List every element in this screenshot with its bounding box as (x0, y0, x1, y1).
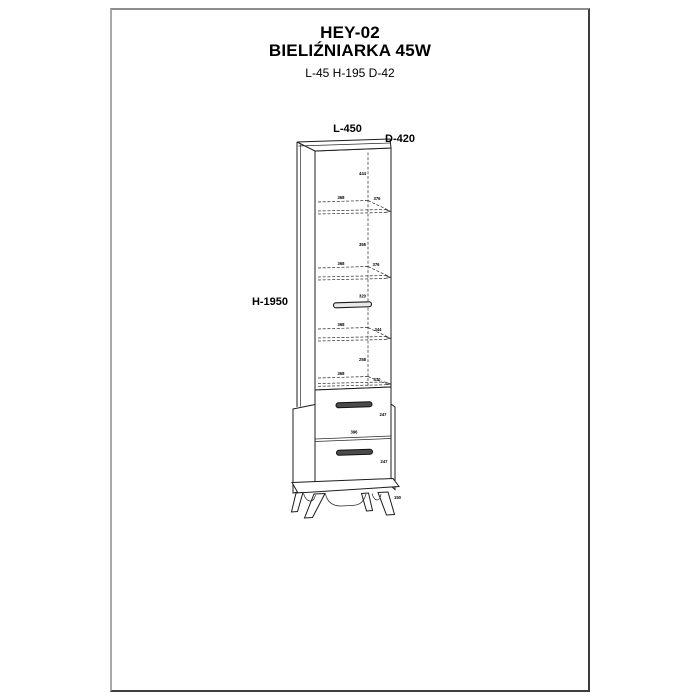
door-handle (333, 302, 371, 308)
dim-gap2: 320 (359, 294, 367, 299)
base-side-panel-right (391, 404, 395, 490)
dim-shelf4-depth: 470 (374, 377, 382, 382)
dim-shelf1-width: 368 (338, 195, 346, 200)
base-and-legs: 150 (292, 479, 402, 519)
leg-back-right (362, 493, 373, 511)
height-dimension-label: H-1950 (252, 296, 288, 308)
dim-shelf4-width: 368 (338, 371, 346, 376)
dim-shelf2-depth: 376 (373, 262, 381, 267)
dim-gap1: 355 (359, 242, 367, 247)
dim-shelf3-depth: 344 (375, 327, 383, 332)
wardrobe-door (315, 148, 391, 390)
dim-shelf2-width: 368 (338, 261, 346, 266)
leg-back-left (292, 493, 304, 513)
cabinet-tower (297, 139, 391, 407)
drawer-1-handle (336, 402, 372, 408)
base-side-panel-left (293, 405, 315, 494)
page-background: HEY-02 BIELIŹNIARKA 45W L-45 H-195 D-42 (0, 0, 700, 700)
dim-top-section: 444 (359, 171, 367, 176)
width-dimension-label: L-450 (333, 123, 362, 135)
drawer-2-handle (336, 449, 372, 455)
furniture-diagram: 368 376 368 376 (0, 0, 700, 700)
dim-drawer2-height: 247 (381, 459, 389, 464)
depth-dimension-label: D-420 (385, 133, 415, 145)
dim-shelf3-width: 368 (338, 322, 346, 327)
dim-drawer1-height: 247 (380, 412, 388, 417)
dim-leg-height: 150 (394, 495, 402, 500)
dim-gap3: 258 (359, 357, 367, 362)
apron-arch-center (326, 494, 367, 506)
dim-shelf1-depth: 376 (374, 196, 382, 201)
dim-drawer1-width: 396 (351, 430, 359, 435)
drawer-unit: 247 396 247 396 (293, 387, 395, 493)
